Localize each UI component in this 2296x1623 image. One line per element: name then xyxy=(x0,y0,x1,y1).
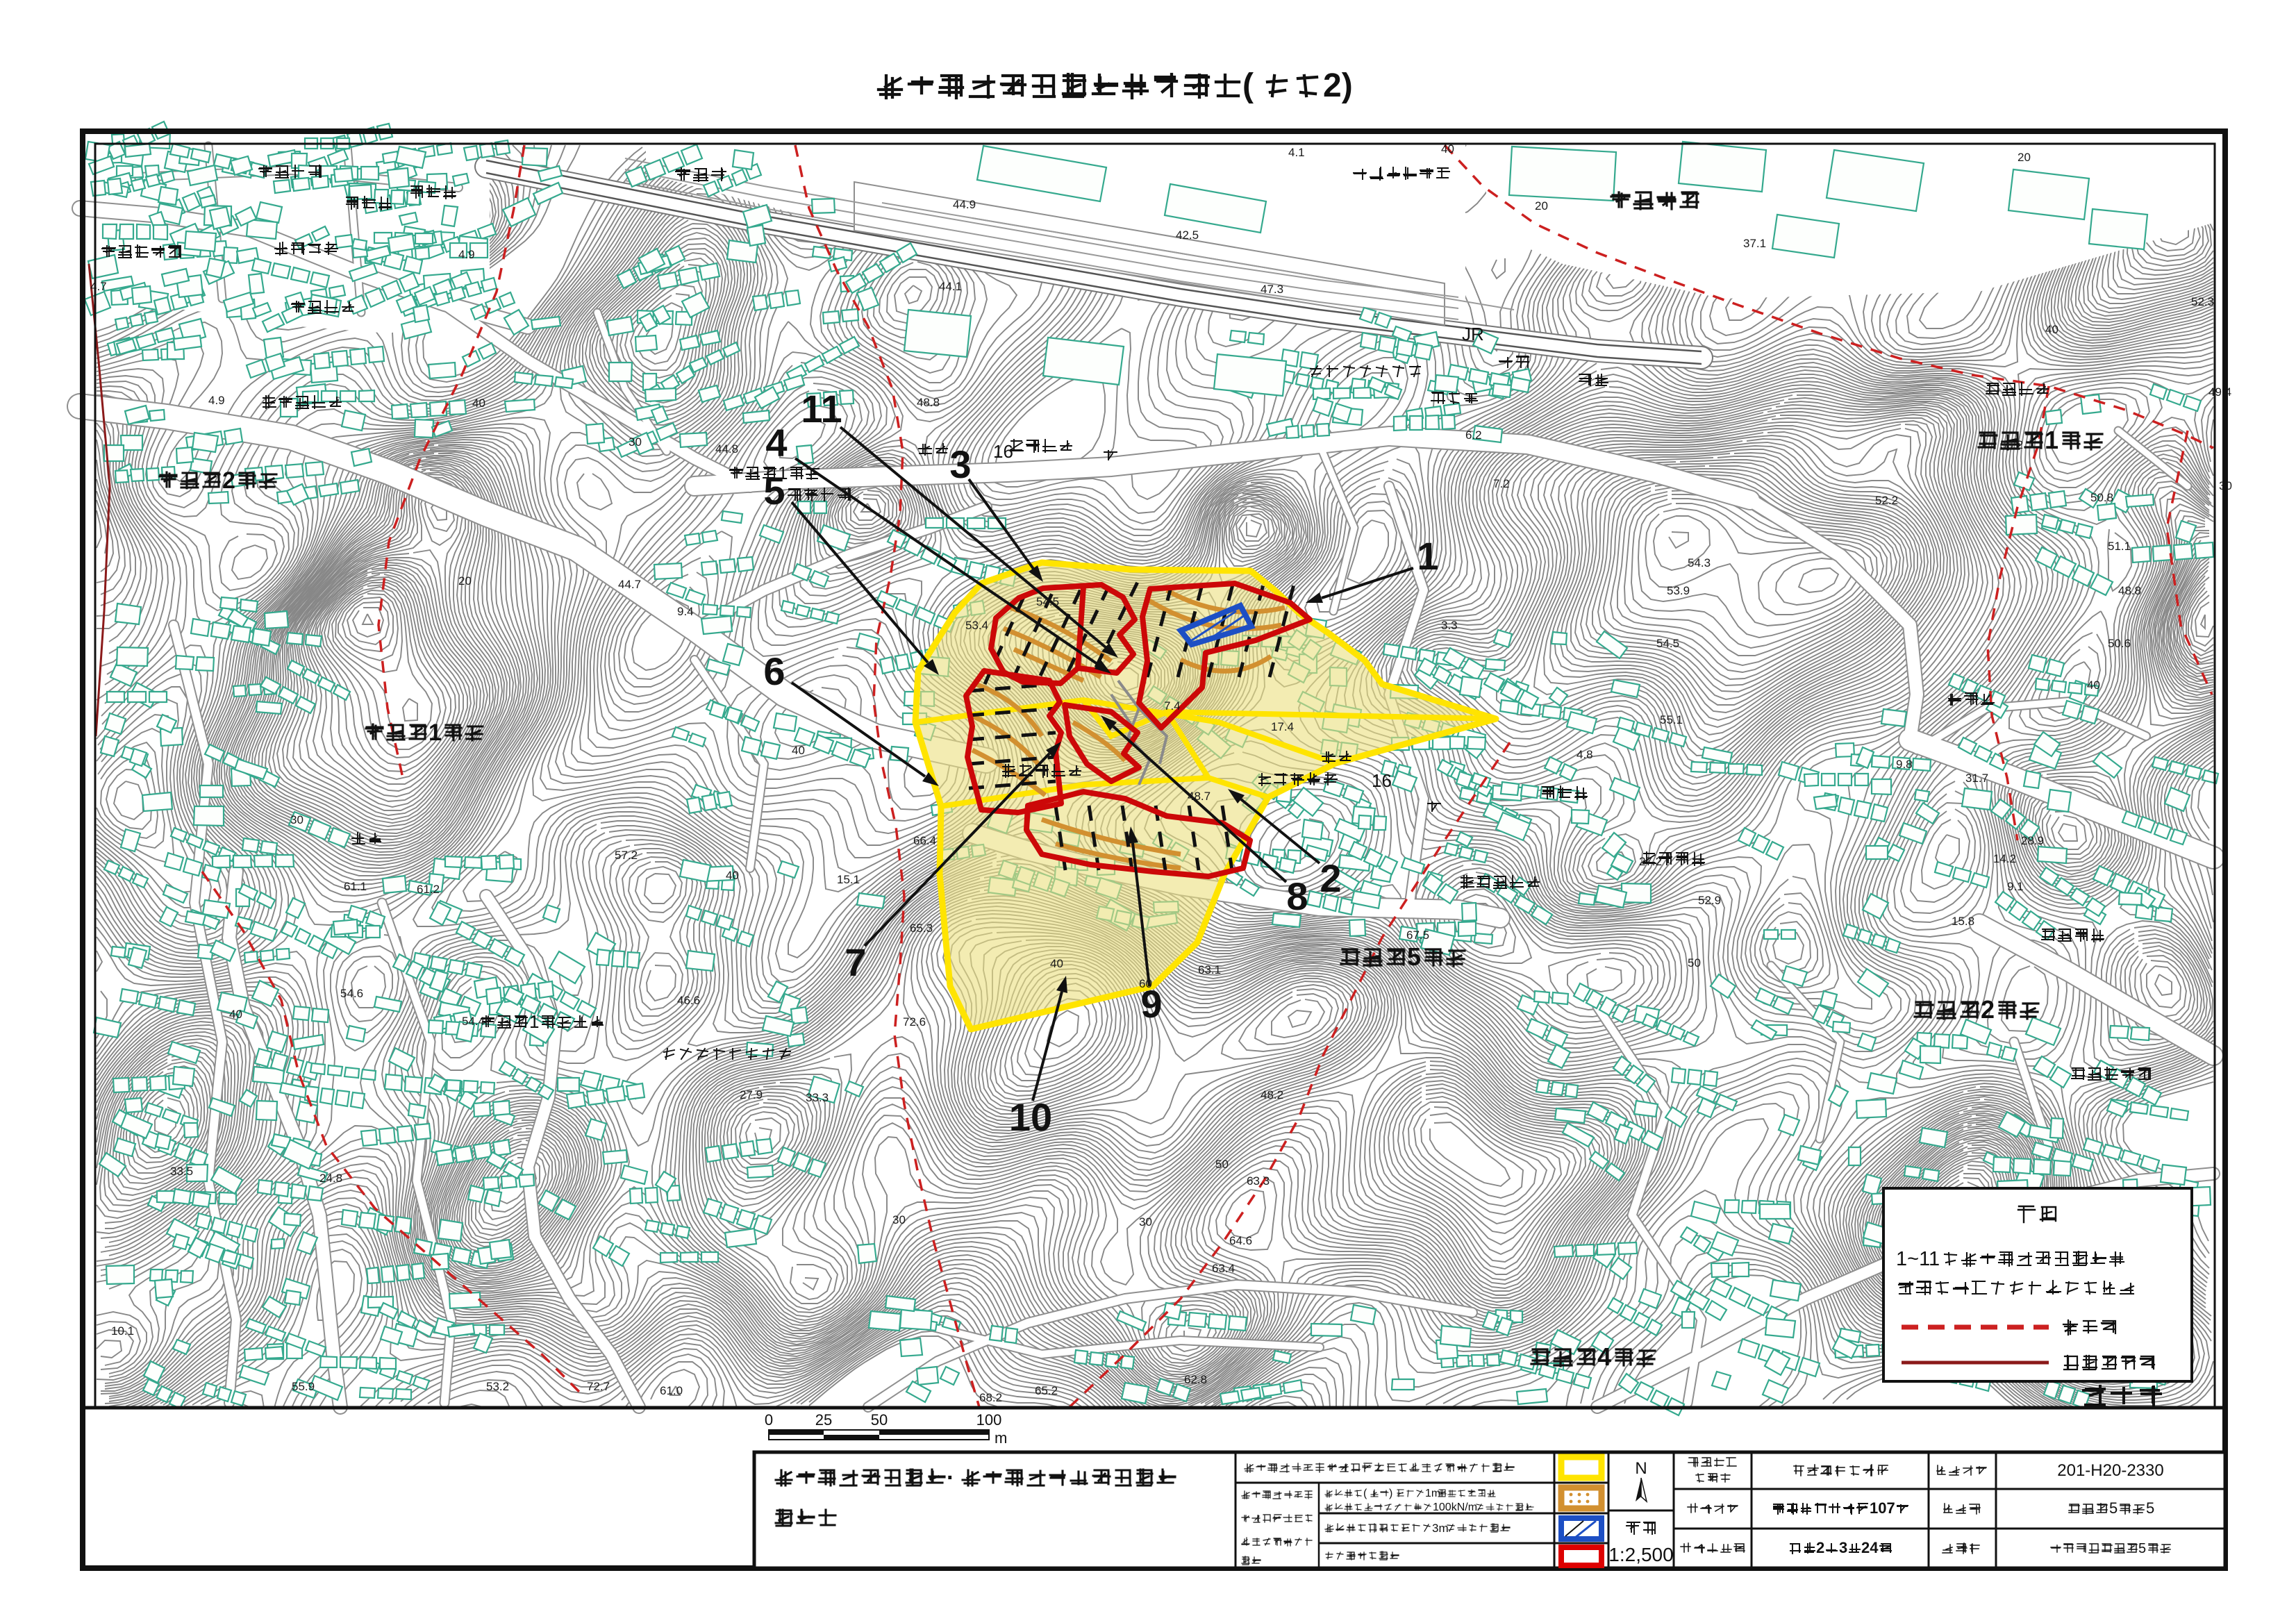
svg-text:16: 16 xyxy=(1372,770,1392,791)
svg-text:16: 16 xyxy=(993,441,1013,462)
svg-text:61.1: 61.1 xyxy=(344,880,367,893)
svg-text:64.6: 64.6 xyxy=(1229,1234,1252,1247)
svg-text:24.8: 24.8 xyxy=(319,1172,342,1185)
svg-text:68.2: 68.2 xyxy=(979,1391,1002,1404)
svg-text:48.2: 48.2 xyxy=(1261,1088,1283,1101)
svg-text:1: 1 xyxy=(529,1011,539,1032)
svg-text:54.5: 54.5 xyxy=(1036,595,1059,608)
svg-text:48.7: 48.7 xyxy=(1188,790,1211,803)
svg-text:52.3: 52.3 xyxy=(2191,295,2214,308)
svg-text:57.2: 57.2 xyxy=(615,849,638,862)
svg-text:44.1: 44.1 xyxy=(939,280,962,293)
svg-text:7.4: 7.4 xyxy=(1164,699,1181,713)
svg-text:72.7: 72.7 xyxy=(587,1380,610,1393)
svg-text:44.9: 44.9 xyxy=(953,198,976,211)
svg-text:62.8: 62.8 xyxy=(1184,1373,1207,1386)
svg-text:JR: JR xyxy=(1462,324,1484,344)
svg-text:·: · xyxy=(947,1465,954,1491)
svg-text:5: 5 xyxy=(2109,1499,2118,1517)
svg-text:30: 30 xyxy=(629,435,642,449)
svg-text:m: m xyxy=(995,1429,1007,1447)
svg-text:107: 107 xyxy=(1870,1499,1895,1517)
svg-text:24: 24 xyxy=(1861,1539,1879,1556)
svg-text:61.2: 61.2 xyxy=(417,883,440,896)
svg-text:42.5: 42.5 xyxy=(1176,228,1199,242)
svg-text:50: 50 xyxy=(1215,1158,1229,1171)
svg-text:53.9: 53.9 xyxy=(1667,584,1690,597)
svg-text:17.4: 17.4 xyxy=(1271,720,1294,733)
svg-text:11: 11 xyxy=(801,387,842,431)
svg-text:48.8: 48.8 xyxy=(917,396,940,409)
svg-text:54.6: 54.6 xyxy=(340,987,363,1000)
svg-text:15.8: 15.8 xyxy=(1952,915,1974,928)
svg-text:3: 3 xyxy=(949,442,971,486)
svg-text:48.8: 48.8 xyxy=(2118,584,2141,597)
svg-text:1: 1 xyxy=(1417,534,1438,578)
svg-text:201-H20-2330: 201-H20-2330 xyxy=(2057,1461,2163,1480)
svg-text:9.1: 9.1 xyxy=(2007,880,2024,893)
svg-text:3.3: 3.3 xyxy=(1441,619,1458,632)
svg-text:65.2: 65.2 xyxy=(1035,1384,1058,1397)
svg-text:67.5: 67.5 xyxy=(1406,929,1429,942)
svg-text:2: 2 xyxy=(1981,995,1995,1024)
svg-text:100kN/m: 100kN/m xyxy=(1433,1501,1477,1513)
svg-text:9.8: 9.8 xyxy=(1896,758,1913,771)
svg-text:1: 1 xyxy=(778,463,788,483)
svg-text:4.9: 4.9 xyxy=(458,248,475,261)
svg-text:40: 40 xyxy=(472,397,485,410)
svg-text:40: 40 xyxy=(792,744,805,757)
svg-text:20: 20 xyxy=(1535,199,1548,213)
svg-text:63.3: 63.3 xyxy=(1247,1174,1270,1188)
svg-text:4.1: 4.1 xyxy=(1288,146,1305,159)
svg-text:30: 30 xyxy=(1139,1215,1152,1229)
svg-text:15.1: 15.1 xyxy=(837,873,860,886)
svg-text:44.7: 44.7 xyxy=(618,578,641,591)
svg-text:4: 4 xyxy=(1597,1342,1611,1371)
svg-text:2: 2 xyxy=(222,467,235,494)
svg-text:50.8: 50.8 xyxy=(2090,491,2113,504)
svg-text:5: 5 xyxy=(2146,1499,2154,1517)
svg-text:52.9: 52.9 xyxy=(1698,894,1721,907)
svg-text:2: 2 xyxy=(1320,856,1341,900)
svg-text:50.6: 50.6 xyxy=(2108,637,2131,650)
svg-text:60: 60 xyxy=(1139,977,1152,990)
svg-text:4.9: 4.9 xyxy=(208,394,225,407)
svg-text:46.6: 46.6 xyxy=(677,994,700,1007)
svg-text:66.4: 66.4 xyxy=(913,834,936,847)
svg-text:(: ( xyxy=(1363,1488,1367,1499)
svg-text:65.3: 65.3 xyxy=(910,922,933,935)
svg-text:20: 20 xyxy=(458,574,472,588)
svg-text:1~11: 1~11 xyxy=(1896,1248,1940,1270)
svg-text:100: 100 xyxy=(976,1411,1002,1429)
svg-text:44.8: 44.8 xyxy=(715,442,738,456)
svg-text:40: 40 xyxy=(2087,679,2100,692)
svg-text:33.3: 33.3 xyxy=(806,1091,829,1104)
svg-text:47.3: 47.3 xyxy=(1261,283,1283,296)
svg-text:40: 40 xyxy=(229,1008,242,1021)
svg-text:27.2: 27.2 xyxy=(1639,855,1662,868)
svg-text:61.0: 61.0 xyxy=(660,1384,683,1397)
svg-text:25: 25 xyxy=(815,1411,832,1429)
svg-text:49.4: 49.4 xyxy=(2208,385,2231,399)
svg-text:4.7: 4.7 xyxy=(90,280,107,293)
svg-text:14.2: 14.2 xyxy=(1993,852,2016,865)
svg-text:72.6: 72.6 xyxy=(903,1015,926,1029)
svg-text:): ) xyxy=(1389,1488,1392,1499)
svg-text:37.1: 37.1 xyxy=(1743,237,1766,250)
svg-text:4.8: 4.8 xyxy=(1577,748,1593,761)
svg-text:33.5: 33.5 xyxy=(170,1165,193,1178)
svg-text:2): 2) xyxy=(1323,67,1353,104)
svg-text:1:2,500: 1:2,500 xyxy=(1608,1544,1673,1565)
svg-text:40: 40 xyxy=(1050,957,1063,970)
svg-text:40: 40 xyxy=(726,869,739,882)
svg-text:63.4: 63.4 xyxy=(1212,1262,1235,1275)
svg-text:54.3: 54.3 xyxy=(1688,556,1711,569)
svg-text:8: 8 xyxy=(1286,874,1308,918)
svg-text:3: 3 xyxy=(1839,1539,1847,1556)
svg-text:6.2: 6.2 xyxy=(1465,428,1482,442)
svg-text:4: 4 xyxy=(765,421,787,465)
svg-text:54.4: 54.4 xyxy=(462,1015,485,1028)
svg-text:7.2: 7.2 xyxy=(1493,477,1510,490)
svg-text:9.4: 9.4 xyxy=(677,605,694,618)
svg-text:53.2: 53.2 xyxy=(486,1380,509,1393)
svg-text:3m: 3m xyxy=(1432,1522,1449,1535)
svg-text:(: ( xyxy=(1242,67,1254,104)
svg-text:54.5: 54.5 xyxy=(1656,637,1679,650)
svg-text:50: 50 xyxy=(1688,956,1701,969)
svg-text:20: 20 xyxy=(2018,151,2031,164)
svg-text:10: 10 xyxy=(1009,1095,1052,1139)
svg-text:56.2: 56.2 xyxy=(2000,438,2023,451)
svg-text:N: N xyxy=(1635,1459,1647,1478)
svg-text:55.1: 55.1 xyxy=(1660,713,1683,726)
svg-text:1m: 1m xyxy=(1425,1488,1440,1499)
svg-text:55.9: 55.9 xyxy=(292,1380,315,1393)
svg-text:53.4: 53.4 xyxy=(965,619,988,632)
svg-text:2: 2 xyxy=(1816,1539,1824,1556)
svg-text:30: 30 xyxy=(290,813,303,826)
svg-text:7: 7 xyxy=(845,940,866,984)
svg-text:50: 50 xyxy=(871,1411,888,1429)
svg-text:5: 5 xyxy=(2138,1541,2146,1556)
svg-text:40: 40 xyxy=(2045,323,2058,336)
svg-text:31.7: 31.7 xyxy=(1965,772,1988,785)
svg-text:6: 6 xyxy=(763,649,785,693)
svg-text:5: 5 xyxy=(1407,942,1421,971)
svg-text:1: 1 xyxy=(2045,426,2058,454)
svg-text:10.1: 10.1 xyxy=(111,1324,134,1338)
svg-text:27.9: 27.9 xyxy=(740,1088,763,1101)
svg-text:30: 30 xyxy=(892,1213,906,1226)
svg-text:52.2: 52.2 xyxy=(1875,494,1898,507)
svg-text:63.1: 63.1 xyxy=(1198,963,1221,976)
svg-text:0: 0 xyxy=(765,1411,773,1429)
svg-text:28.9: 28.9 xyxy=(2021,834,2044,847)
svg-text:1: 1 xyxy=(429,719,442,746)
svg-text:51.1: 51.1 xyxy=(2108,540,2131,553)
